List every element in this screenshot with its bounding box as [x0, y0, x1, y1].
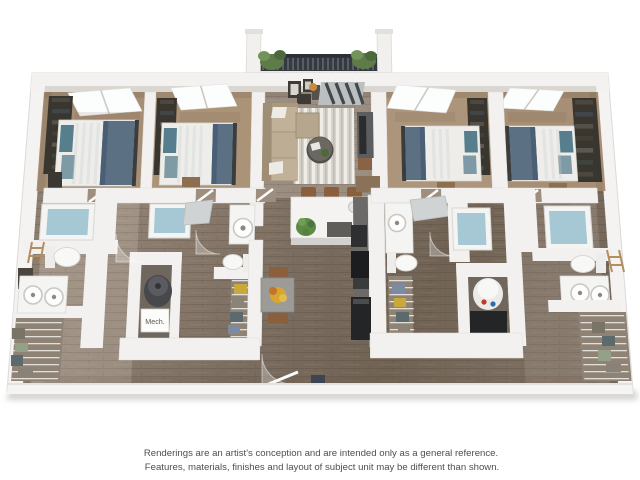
svg-text:Mech.: Mech. — [145, 317, 165, 326]
svg-text:Features, materials, finishes: Features, materials, finishes and layout… — [145, 462, 499, 473]
svg-text:Renderings are an artist's con: Renderings are an artist's conception an… — [144, 448, 498, 459]
